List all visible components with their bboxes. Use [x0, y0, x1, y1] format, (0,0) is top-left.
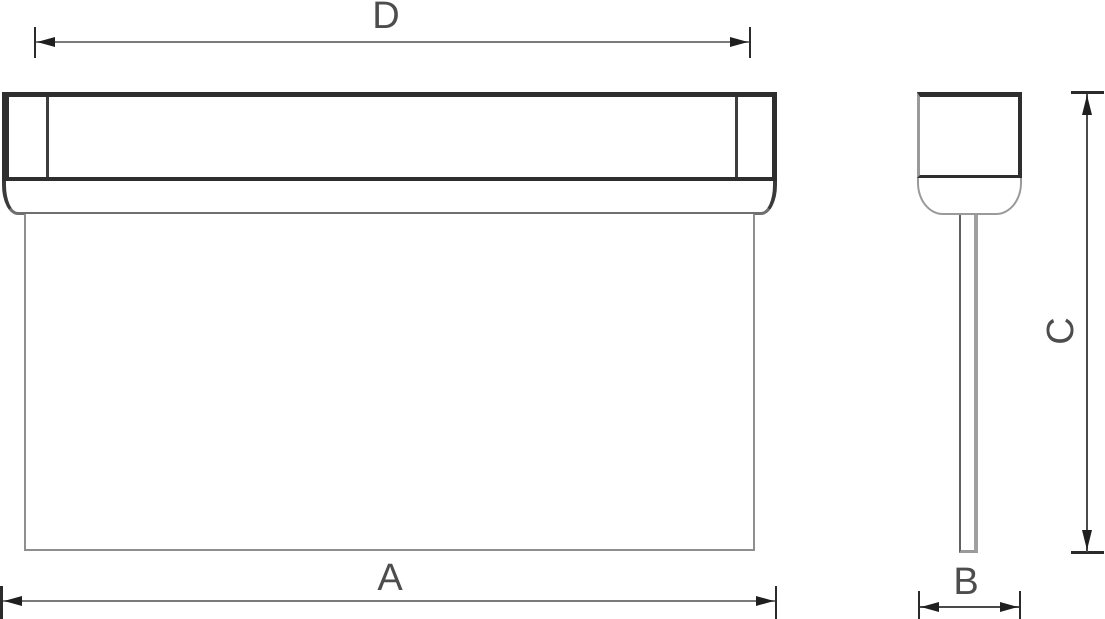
dimension-c-arrow-down-icon: [1082, 530, 1092, 550]
dimension-b-tick-left: [918, 591, 920, 619]
technical-drawing: D A C B: [0, 0, 1105, 619]
front-housing-outline: [2, 92, 777, 181]
dimension-a-tick-left: [0, 586, 3, 619]
dimension-a-tick-right: [775, 586, 777, 619]
front-endcap-left-line: [46, 97, 49, 177]
dimension-a-arrow-left-icon: [4, 596, 22, 606]
dimension-b-arrow-right-icon: [1000, 602, 1018, 612]
dimension-a-arrow-right-icon: [756, 596, 774, 606]
dimension-d-arrow-right-icon: [730, 37, 748, 47]
dimension-c-line: [1086, 94, 1088, 552]
dimension-a-label: A: [377, 559, 402, 597]
dimension-d-arrow-left-icon: [37, 37, 55, 47]
front-sign-panel: [24, 214, 755, 551]
dimension-a-line: [3, 600, 775, 602]
dimension-b-arrow-left-icon: [921, 602, 939, 612]
side-housing-bottom-curve: [917, 178, 1022, 215]
front-endcap-right-line: [735, 97, 738, 177]
side-housing-outline: [917, 92, 1022, 178]
dimension-c-label: C: [1042, 317, 1080, 344]
dimension-c-arrow-up-icon: [1082, 95, 1092, 115]
dimension-b-label: B: [953, 563, 978, 601]
dimension-b-tick-right: [1019, 591, 1021, 619]
dimension-d-tick-right: [749, 27, 751, 58]
front-housing-lower-band: [2, 181, 777, 215]
dimension-d-label: D: [372, 0, 399, 35]
dimension-d-line: [36, 41, 749, 43]
side-sign-panel-edge: [959, 215, 978, 553]
